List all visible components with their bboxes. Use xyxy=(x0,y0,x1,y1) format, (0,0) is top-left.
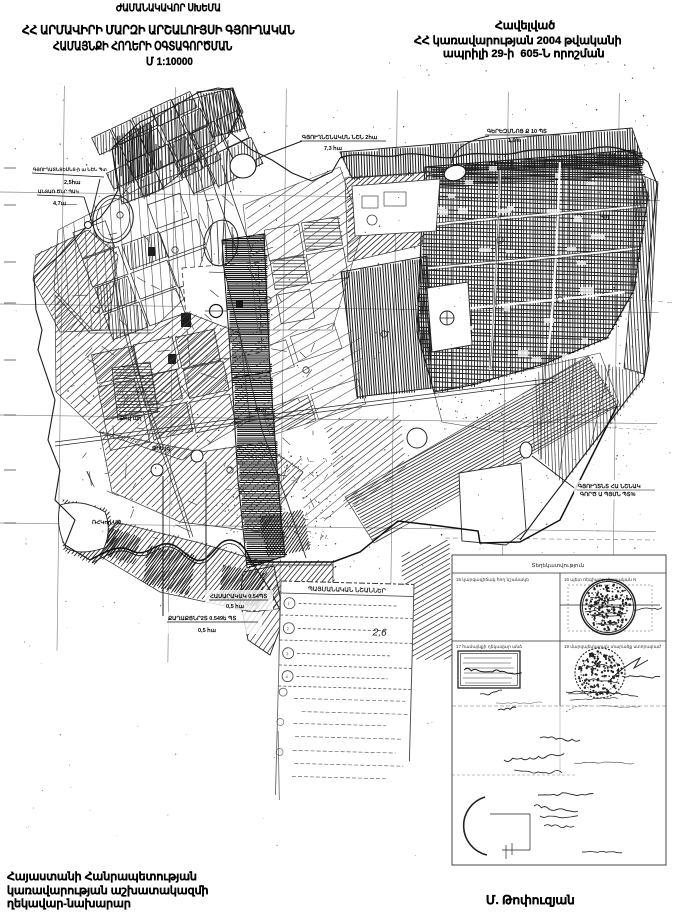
svg-text:ՔԱՂԱՔՑՆՐ2Տ 0.549ե ՊՏ: ՔԱՂԱՔՑՆՐ2Տ 0.549ե ՊՏ xyxy=(168,615,236,622)
svg-text:2,5հա: 2,5հա xyxy=(64,178,81,186)
svg-text:0,5 հա: 0,5 հա xyxy=(198,626,217,634)
svg-text:ՌՀԿոր ՍՁ: ՌՀԿոր ՍՁ xyxy=(92,519,122,526)
svg-text:ԳՅՈՒՂԱՏՆՏԵՍՆՏ-ի ա ՆՇՆ Պտ: ԳՅՈՒՂԱՏՆՏԵՍՆՏ-ի ա ՆՇՆ Պտ xyxy=(33,166,107,173)
svg-text:Վրլ: Վրլ xyxy=(600,213,610,220)
svg-text:2,6: 2,6 xyxy=(372,627,388,638)
svg-text:Տեղեկատվություն: Տեղեկատվություն xyxy=(532,562,585,569)
svg-text:4,7ա: 4,7ա xyxy=(53,201,67,207)
svg-text:Քով պղ: Քով պղ xyxy=(120,415,143,422)
svg-text:ԳՅՈՒՂՆՇՆԱԿՄՆ ՆՇՆ 2հա: ԳՅՈՒՂՆՇՆԱԿՄՆ ՆՇՆ 2հա xyxy=(302,133,378,141)
svg-text:7,3 հա: 7,3 հա xyxy=(324,144,343,152)
svg-text:ԳԵՐԵԶՄՆՈՑ Ք 10 ՊՏ: ԳԵՐԵԶՄՆՈՑ Ք 10 ՊՏ xyxy=(487,128,547,135)
svg-text:0,5 հա: 0,5 հա xyxy=(226,602,245,610)
svg-text:ԳՅՈՒՂՏՆՏ ՀԱ ՆՇՆԱԿ: ԳՅՈՒՂՏՆՏ ՀԱ ՆՇՆԱԿ xyxy=(578,483,641,490)
svg-text:ՋԻն լզ: ՋԻն լզ xyxy=(152,445,172,452)
svg-text:Բնկ: Բնկ xyxy=(255,407,267,414)
svg-text:1,9%: 1,9% xyxy=(508,138,521,144)
svg-text:ԱՆՏԱՌ ԾՆՐ ՊԱԿ: ԱՆՏԱՌ ԾՆՐ ՊԱԿ xyxy=(38,189,80,194)
svg-text:ՀԱՍԱՐԱԿԱԿ 0.54ՊՏ: ՀԱՍԱՐԱԿԱԿ 0.54ՊՏ xyxy=(210,593,267,600)
svg-text:ԳՈՐԾ Ա ՊՅՄՆ ՊՏ%: ԳՈՐԾ Ա ՊՅՄՆ ՊՏ% xyxy=(580,491,636,498)
